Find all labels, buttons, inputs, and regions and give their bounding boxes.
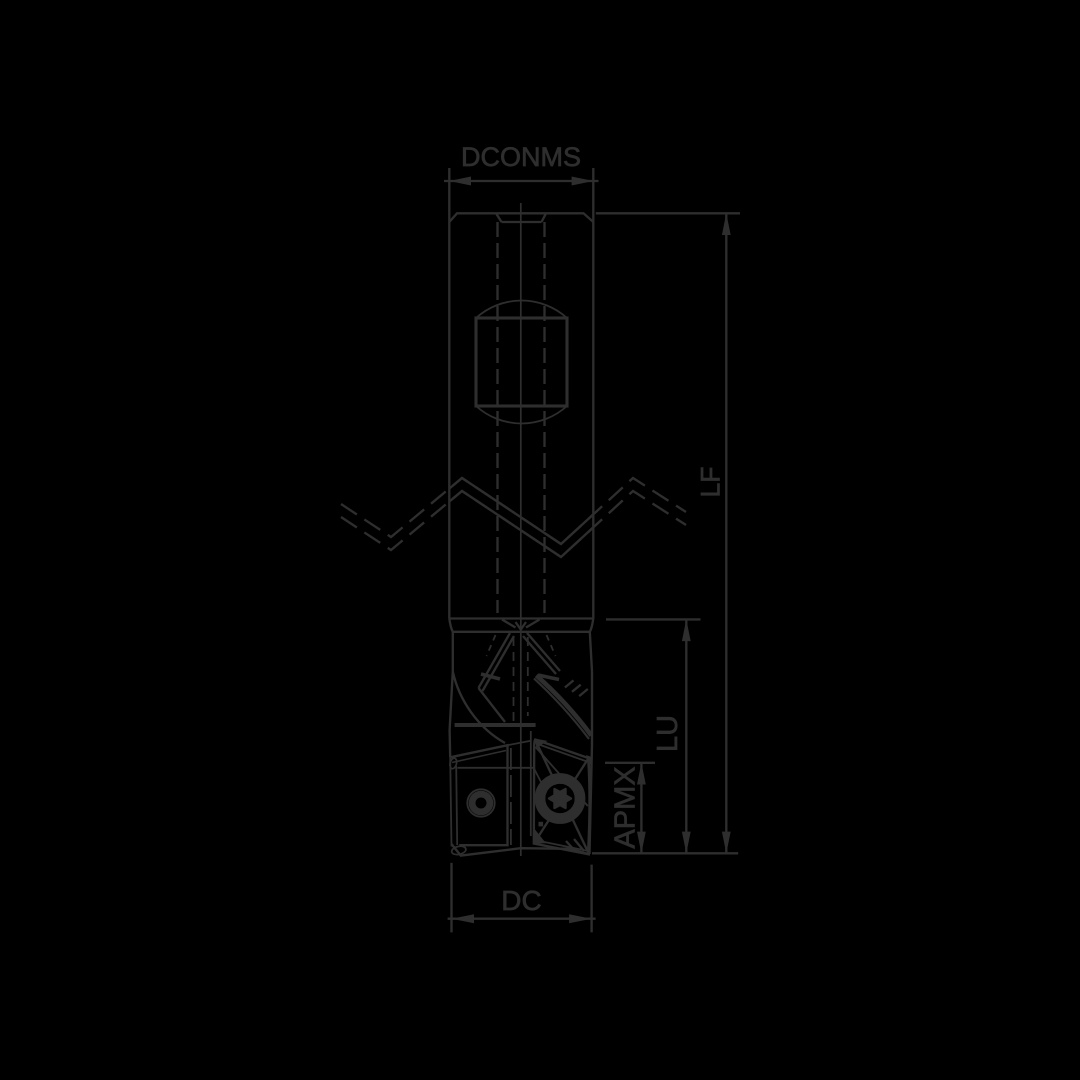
svg-text:LF: LF xyxy=(696,467,726,498)
svg-text:APMX: APMX xyxy=(610,766,642,848)
svg-text:DCONMS: DCONMS xyxy=(461,142,581,172)
svg-text:LU: LU xyxy=(652,715,684,752)
svg-text:DC: DC xyxy=(501,885,541,916)
